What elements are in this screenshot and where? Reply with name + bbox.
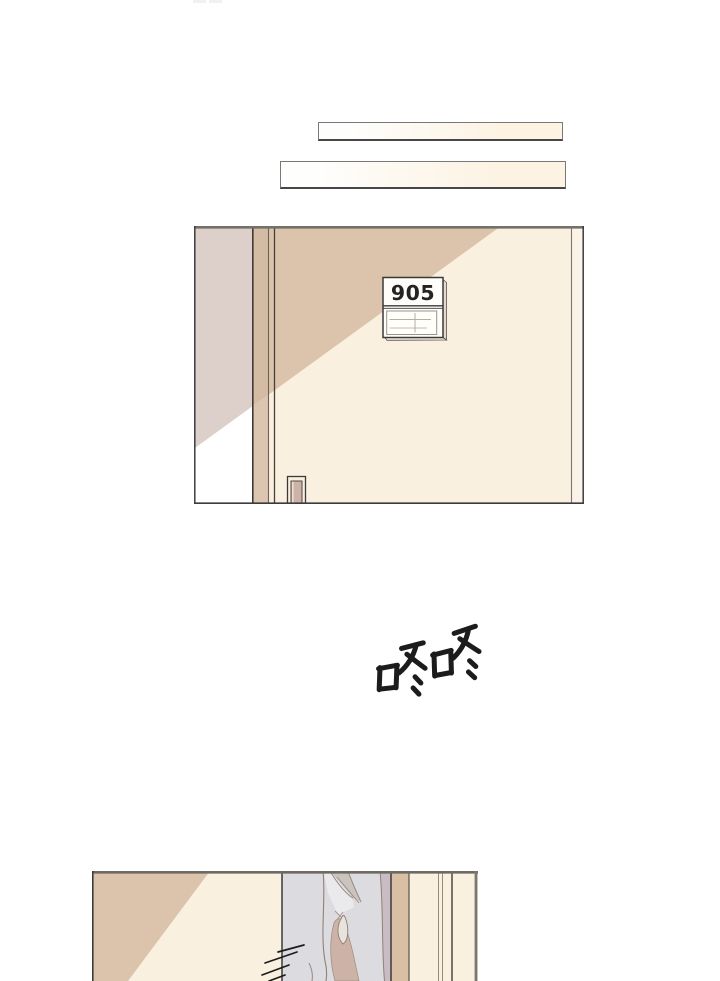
sfx-char-dong-2: [429, 626, 482, 682]
door-jamb-light: [253, 395, 269, 504]
cropped-text-remnant: [209, 0, 222, 3]
panel-strip-narrow: [318, 122, 563, 141]
panel-door-opening: [92, 871, 478, 981]
door-kickplate: [288, 477, 306, 504]
door-edge-tan-strip: [391, 871, 409, 981]
comic-page: 905: [0, 0, 720, 981]
panel-strip-wide: [280, 161, 566, 189]
door-edge-strip: [572, 226, 585, 504]
cropped-text-remnant: [193, 0, 206, 3]
sfx-knock-knock: [365, 618, 490, 713]
door-sign-nameplate: [387, 311, 437, 335]
door-jamb-shadow: [253, 226, 269, 406]
sfx-strokes: [377, 626, 482, 696]
panel-hallway-door: 905: [194, 226, 584, 504]
sfx-char-dong-1: [377, 643, 427, 696]
door-sign: 905: [383, 278, 447, 341]
door-sign-number: 905: [391, 281, 435, 305]
